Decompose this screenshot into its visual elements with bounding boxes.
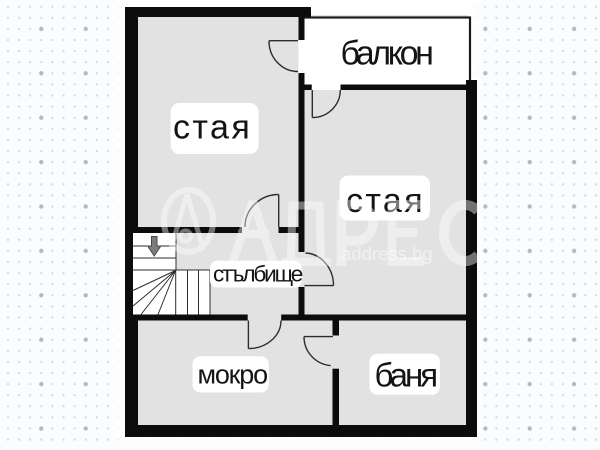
svg-text:мокро: мокро xyxy=(197,359,267,389)
svg-text:address.bg: address.bg xyxy=(341,243,433,264)
svg-text:стая: стая xyxy=(173,109,252,147)
svg-text:баня: баня xyxy=(375,356,437,393)
svg-text:балкон: балкон xyxy=(341,35,433,73)
